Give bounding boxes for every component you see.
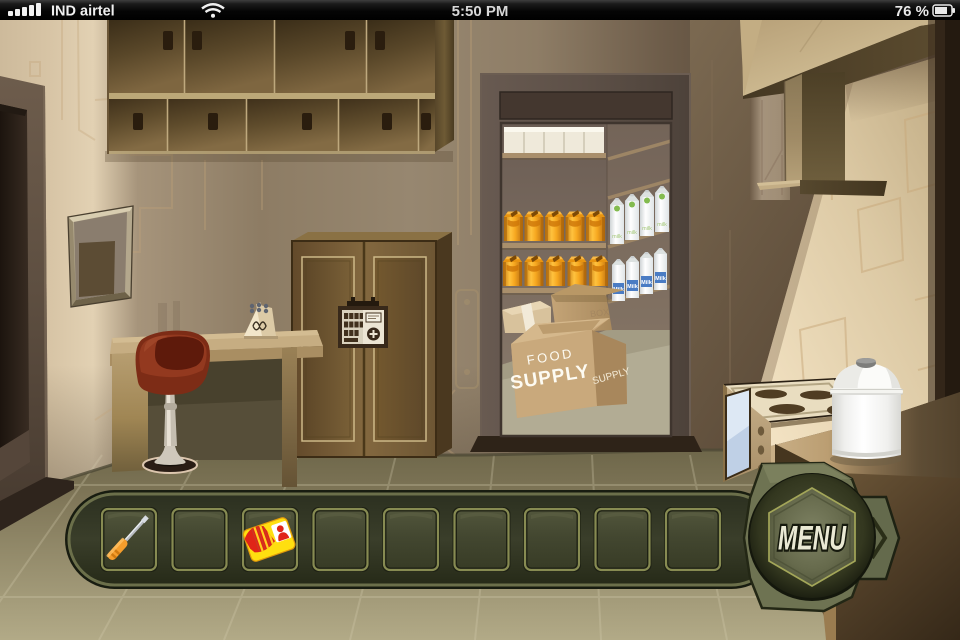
svg-text:MENU: MENU [778,520,847,557]
svg-text:IND airtel: IND airtel [51,4,115,20]
svg-text:76 %: 76 % [895,3,929,20]
svg-text:5:50 PM: 5:50 PM [452,3,509,20]
